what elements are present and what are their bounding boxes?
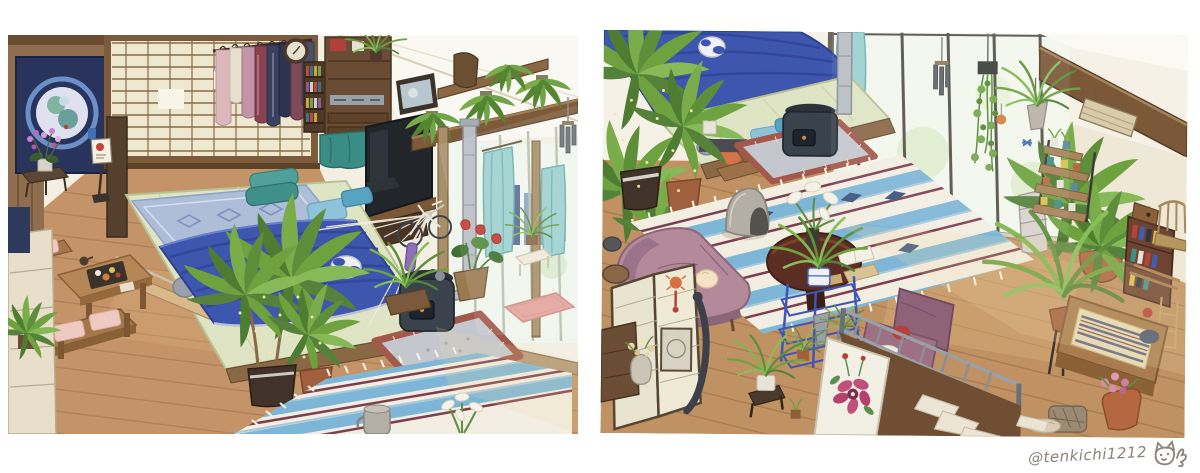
teal-cloth [320,131,370,168]
left-panel [8,35,578,434]
folding-screen [601,264,707,430]
open-door-frame [107,117,127,237]
right-panel-art [600,30,1187,438]
artwork-canvas: @tenkichi1212 [0,0,1200,473]
floor-disc [603,237,621,251]
signature-text: @tenkichi1212 [1028,444,1148,465]
framed-art [661,329,691,371]
cat-doodle-icon [1152,440,1188,470]
artist-signature: @tenkichi1212 [1028,440,1188,470]
drum-stool [603,265,629,283]
right-panel [600,30,1187,438]
hanging-bag [454,53,478,88]
crab-art [670,277,682,289]
flower-vase [631,354,652,384]
wall-clock [285,40,307,62]
left-panel-art [8,35,578,434]
window-glow [830,32,1070,238]
bookshelf [304,62,325,132]
